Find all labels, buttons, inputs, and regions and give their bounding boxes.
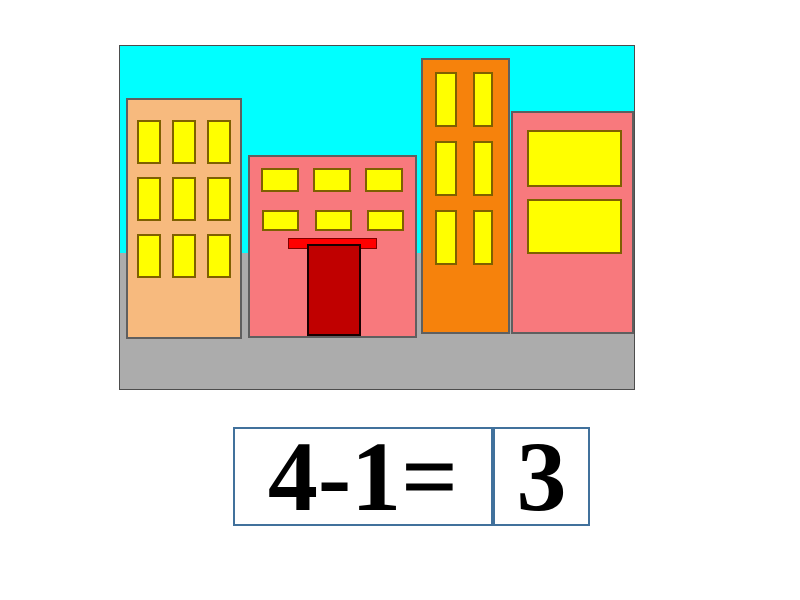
- equation-table: 4-1= 3: [233, 427, 590, 526]
- window: [137, 120, 161, 164]
- window: [207, 234, 231, 278]
- building-tan: [126, 98, 242, 339]
- window: [172, 120, 196, 164]
- window-row: [262, 210, 404, 231]
- window: [172, 234, 196, 278]
- window: [527, 130, 622, 187]
- building-pink-right: [511, 111, 634, 334]
- red-door: [307, 244, 361, 336]
- equation-answer-cell: 3: [493, 427, 590, 526]
- window: [137, 234, 161, 278]
- building-pink-with-door: [248, 155, 417, 338]
- city-scene-picture: [119, 45, 635, 390]
- window: [262, 210, 299, 231]
- window: [207, 177, 231, 221]
- window: [473, 72, 493, 127]
- window: [473, 141, 493, 196]
- window: [473, 210, 493, 265]
- window: [207, 120, 231, 164]
- building-orange: [421, 58, 510, 334]
- window-row: [261, 168, 403, 192]
- window: [435, 141, 457, 196]
- window: [367, 210, 404, 231]
- window: [137, 177, 161, 221]
- window: [365, 168, 403, 192]
- window-grid: [435, 72, 497, 265]
- window: [527, 199, 622, 254]
- window: [313, 168, 351, 192]
- window: [172, 177, 196, 221]
- slide: 4-1= 3: [0, 0, 800, 600]
- window: [435, 72, 457, 127]
- window: [261, 168, 299, 192]
- window: [315, 210, 352, 231]
- window-grid: [137, 120, 231, 278]
- equation-expression-cell: 4-1=: [233, 427, 493, 526]
- window: [435, 210, 457, 265]
